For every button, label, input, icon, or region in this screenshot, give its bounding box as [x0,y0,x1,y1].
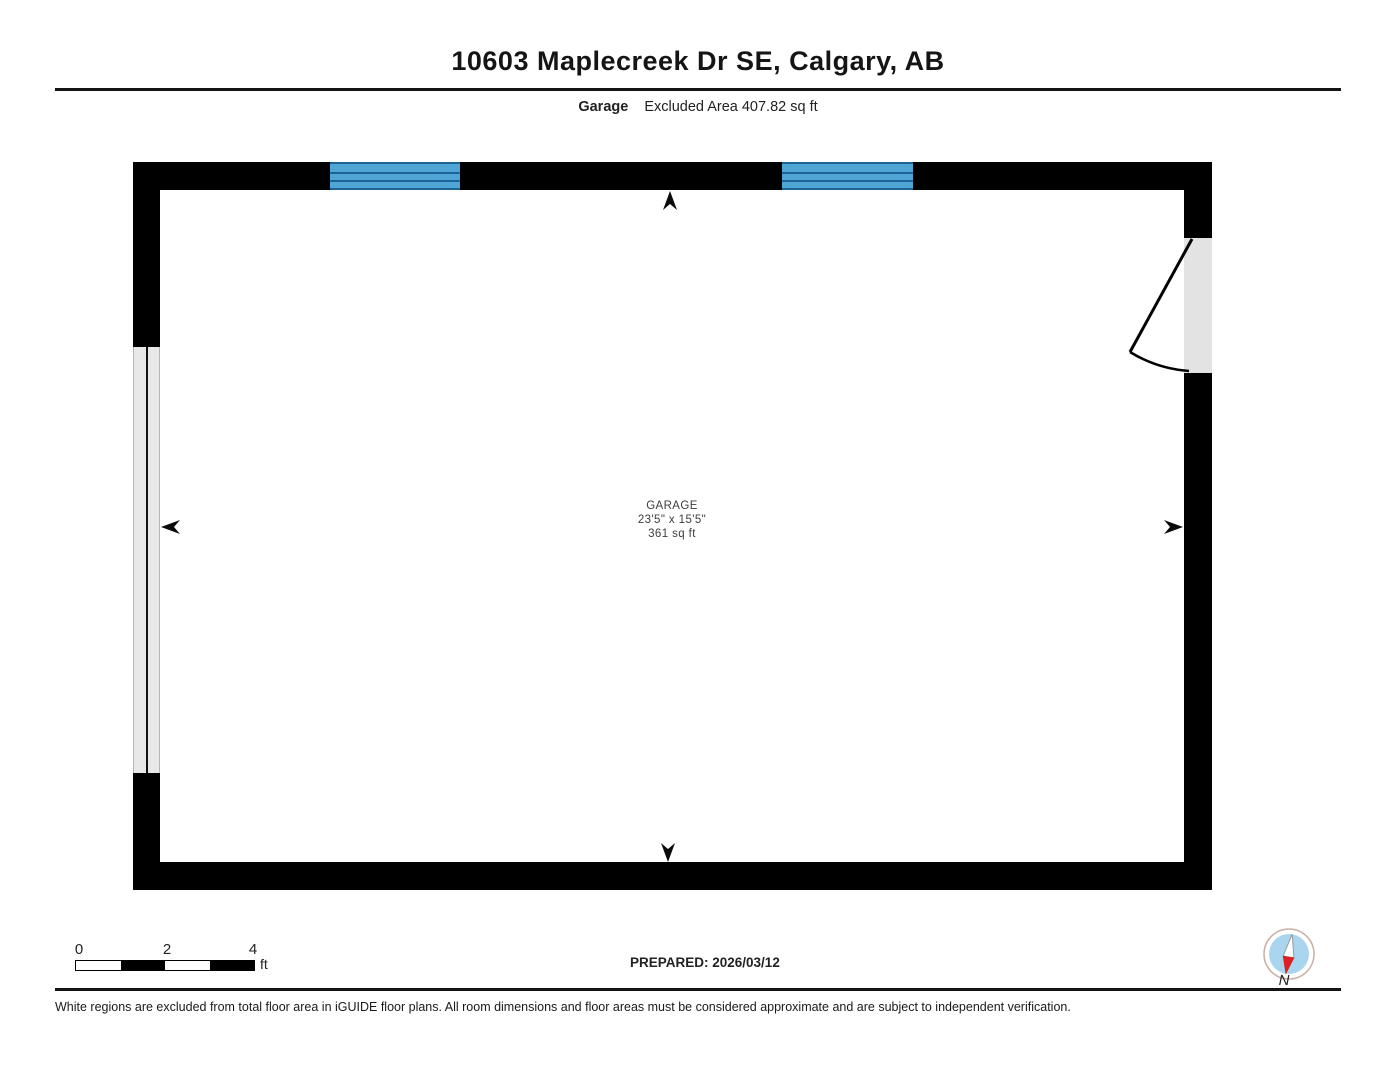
direction-arrow-right-icon [1164,520,1183,534]
excluded-area-note: Excluded Area 407.82 sq ft [644,99,817,115]
room-area: 361 sq ft [638,527,706,541]
window-mullion [330,180,460,182]
room-dimensions: 23'5" x 15'5" [638,513,706,527]
scale-tick-2: 2 [158,941,176,958]
scale-segment [76,961,121,970]
compass-north-label: N [1271,972,1297,989]
footer-divider [55,988,1341,991]
scale-segment [121,961,166,970]
room-name: GARAGE [638,499,706,513]
scale-unit-label: ft [260,956,268,972]
window-mullion [782,172,913,174]
window-mullion [330,172,460,174]
floor-label: Garage [578,99,628,115]
wall-top [133,162,1212,190]
direction-arrow-left-icon [161,520,180,534]
door-opening [1184,238,1212,373]
scale-bar [75,960,255,971]
garage-door-centerline [146,347,148,773]
title-divider [55,88,1341,91]
window-icon [782,162,913,190]
scale-tick-0: 0 [70,941,88,958]
window-icon [330,162,460,190]
floor-subtitle: Garage Excluded Area 407.82 sq ft [0,99,1396,115]
room-label: GARAGE 23'5" x 15'5" 361 sq ft [638,499,706,541]
direction-arrow-down-icon [661,843,675,862]
scale-segment [165,961,210,970]
scale-segment [210,961,255,970]
prepared-date: PREPARED: 2026/03/12 [630,955,780,970]
floorplan-page: 10603 Maplecreek Dr SE, Calgary, AB Gara… [0,0,1396,1080]
garage-door-icon [133,347,160,773]
wall-bottom [133,862,1212,890]
page-title: 10603 Maplecreek Dr SE, Calgary, AB [0,46,1396,77]
disclaimer-text: White regions are excluded from total fl… [55,1000,1155,1014]
direction-arrow-up-icon [663,191,677,210]
window-mullion [782,180,913,182]
